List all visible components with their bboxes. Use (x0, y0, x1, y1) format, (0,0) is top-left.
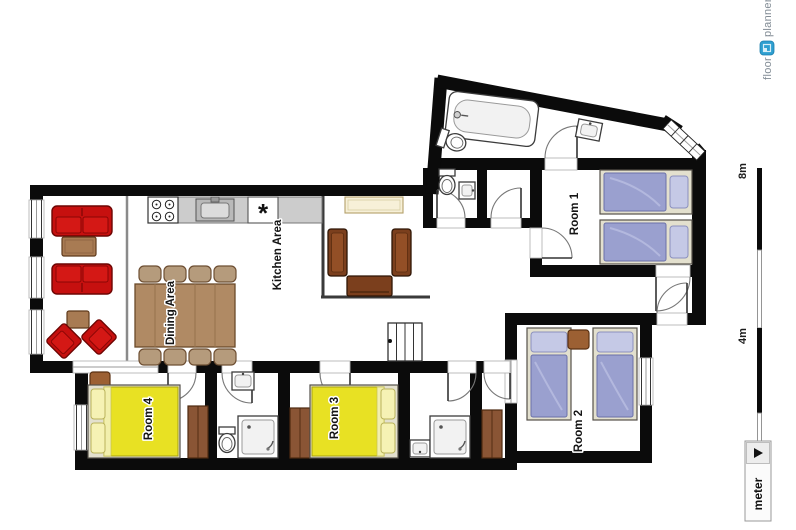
door-closet (491, 188, 521, 228)
chair (139, 266, 161, 282)
living-room (46, 206, 118, 359)
shower-icon (430, 416, 470, 458)
room1 (600, 170, 692, 264)
chair (189, 349, 211, 365)
dining-chairs-top (139, 266, 236, 282)
sink-icon (410, 440, 430, 457)
dining-label: Dining Area (165, 280, 177, 345)
chair (189, 266, 211, 282)
chair (214, 266, 236, 282)
unit-label: meter (751, 477, 765, 510)
sitting-nook (328, 197, 422, 361)
coffee-table (62, 237, 96, 256)
unit-dropdown[interactable]: meter (745, 441, 771, 521)
scale-8m-label: 8m (737, 163, 749, 179)
nightstand (568, 330, 589, 349)
door-bathroom (545, 126, 577, 170)
single-bed (593, 328, 637, 420)
door-room1-bottom (656, 265, 690, 311)
room4-label: Room 4 (143, 397, 155, 440)
room1-label: Room 1 (569, 192, 581, 235)
door-room2 (657, 283, 687, 325)
room3 (290, 385, 398, 458)
double-bed (88, 385, 180, 458)
room2 (527, 328, 637, 420)
side-table (67, 311, 89, 328)
wardrobe (188, 406, 208, 458)
dining-area (135, 266, 236, 365)
floorplanner-logo: floor planner (760, 0, 774, 80)
kitchen-label: Kitchen Area (272, 219, 284, 290)
room2-label: Room 2 (573, 410, 585, 452)
wardrobe (290, 408, 310, 458)
logo-word-floor: floor (762, 57, 774, 80)
sink-icon (232, 372, 254, 390)
sink-icon (459, 182, 475, 199)
window (29, 310, 44, 354)
bathroom-b (410, 410, 502, 458)
single-bed (600, 220, 692, 264)
sofa (52, 264, 112, 294)
bench-table (347, 276, 392, 296)
window (639, 358, 653, 405)
single-bed (600, 170, 692, 214)
sofa (52, 206, 112, 236)
shower-icon (238, 416, 278, 458)
wall-sink-icon (576, 119, 603, 141)
room3-label: Room 3 (329, 397, 341, 439)
dining-table (135, 284, 235, 347)
double-bed (310, 385, 398, 458)
bathroom-a (219, 372, 278, 458)
door-room1-left (530, 228, 572, 258)
sideboard (345, 197, 403, 213)
kitchen-sink-icon (196, 197, 234, 221)
wardrobe (482, 410, 502, 458)
floorplan-drawing: * (0, 0, 796, 530)
window (29, 257, 44, 298)
svg-text:*: * (258, 198, 269, 228)
chair (164, 266, 186, 282)
toilet-icon (439, 169, 455, 195)
floorplanner-logo-icon (760, 41, 774, 55)
toilet-icon (219, 427, 235, 453)
single-bed (527, 328, 571, 420)
scale-bar: 8m 4m (737, 163, 762, 443)
kitchen: * (148, 197, 322, 228)
logo-word-planner: planner (762, 0, 774, 37)
stove-icon (148, 197, 178, 223)
chair (214, 349, 236, 365)
chair (164, 349, 186, 365)
angled-window (663, 120, 705, 160)
wc-room (439, 169, 475, 199)
floorplan-canvas: * (0, 0, 796, 530)
scale-4m-label: 4m (737, 328, 749, 344)
window (29, 200, 44, 238)
radiator-icon (388, 323, 422, 361)
window (74, 405, 89, 450)
chair (139, 349, 161, 365)
